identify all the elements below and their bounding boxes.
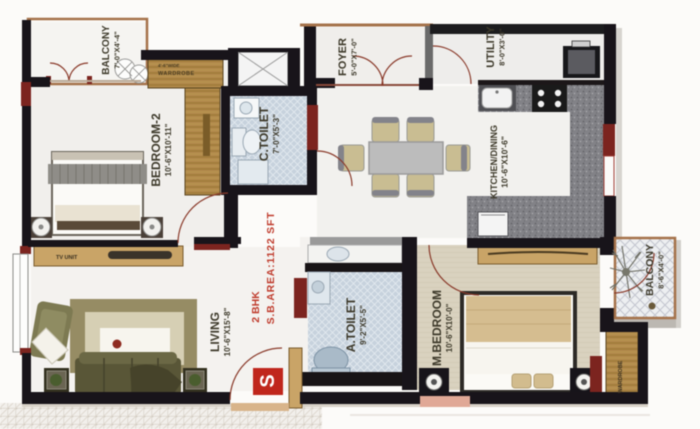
svg-text:A.TOILET9'-2"X5'-5": A.TOILET9'-2"X5'-5" (344, 297, 368, 352)
svg-text:UTILITY8'-0"X3'-0": UTILITY8'-0"X3'-0" (485, 26, 507, 68)
svg-text:2 BHK: 2 BHK (250, 291, 262, 323)
svg-text:4'-6"WIDE: 4'-6"WIDE (158, 63, 179, 68)
svg-text:BALCONY7'-0"X4'-4": BALCONY7'-0"X4'-4" (101, 25, 122, 75)
svg-text:C.TOILET7'-0"X5'-3": C.TOILET7'-0"X5'-3" (257, 106, 281, 161)
svg-text:BEDROOM-210'-6"X10'-11": BEDROOM-210'-6"X10'-11" (149, 113, 173, 187)
svg-text:WARDROBE: WARDROBE (618, 360, 624, 393)
svg-text:LIVING10'-6"X15'-8": LIVING10'-6"X15'-8" (208, 307, 232, 356)
svg-text:FOYER5'-0"X7'-0": FOYER5'-0"X7'-0" (337, 38, 359, 76)
svg-text:KITCHEN/DINING10'-6"X10'-6": KITCHEN/DINING10'-6"X10'-6" (489, 125, 510, 199)
svg-text:WARDROBE: WARDROBE (158, 71, 195, 77)
svg-text:S.B.AREA:1122 SFT: S.B.AREA:1122 SFT (265, 212, 277, 325)
svg-text:S: S (257, 374, 279, 387)
svg-text:TV UNIT: TV UNIT (56, 255, 78, 261)
svg-text:BALCONY8'-6"X4'-0": BALCONY8'-6"X4'-0" (644, 244, 666, 296)
